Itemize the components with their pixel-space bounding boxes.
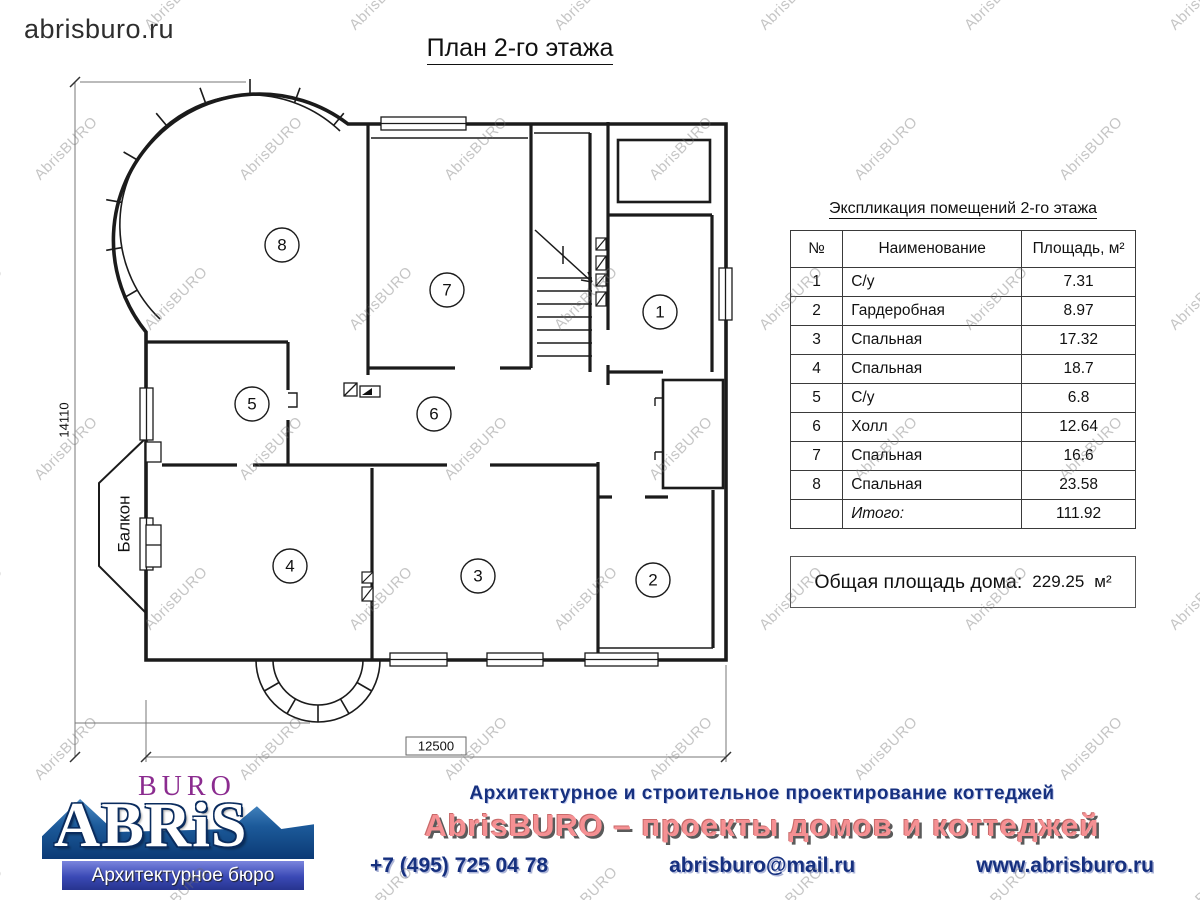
- table-cell: Спальная: [843, 355, 1022, 384]
- room-number-2: 2: [648, 571, 657, 590]
- table-cell: Спальная: [843, 471, 1022, 500]
- abris-logo: BURO ABRiS Архитектурное бюро: [42, 771, 327, 896]
- table-row: 8Спальная23.58: [791, 471, 1136, 500]
- dim-width-label: 12500: [418, 739, 454, 754]
- table-cell: 7: [791, 442, 843, 471]
- table-cell: Спальная: [843, 442, 1022, 471]
- table-cell: Спальная: [843, 326, 1022, 355]
- expl-col-header: Площадь, м²: [1022, 231, 1136, 268]
- table-cell: 18.7: [1022, 355, 1136, 384]
- room-number-7: 7: [442, 281, 451, 300]
- table-cell: 12.64: [1022, 413, 1136, 442]
- footer-phone: +7 (495) 725 04 78: [370, 854, 548, 878]
- table-cell: 2: [791, 297, 843, 326]
- table-cell: Холл: [843, 413, 1022, 442]
- logo-abris-text: ABRiS: [54, 793, 248, 857]
- expl-total-row: Итого: 111.92: [791, 500, 1136, 529]
- table-cell: 23.58: [1022, 471, 1136, 500]
- niche-outline: [663, 380, 723, 488]
- table-cell: 17.32: [1022, 326, 1136, 355]
- table-cell: 1: [791, 268, 843, 297]
- table-cell: 7.31: [1022, 268, 1136, 297]
- footer-right: Архитектурное и строительное проектирова…: [352, 783, 1172, 878]
- room-number-3: 3: [473, 567, 482, 586]
- logo-tagline: Архитектурное бюро: [62, 861, 304, 890]
- table-row: 1С/у7.31: [791, 268, 1136, 297]
- expl-header-row: №НаименованиеПлощадь, м²: [791, 231, 1136, 268]
- table-cell: 6.8: [1022, 384, 1136, 413]
- room-number-5: 5: [247, 395, 256, 414]
- table-cell: 4: [791, 355, 843, 384]
- expl-col-header: Наименование: [843, 231, 1022, 268]
- footer-contacts-line: +7 (495) 725 04 78 abrisburo@mail.ru www…: [352, 854, 1172, 878]
- table-cell: Гардеробная: [843, 297, 1022, 326]
- vent-shafts: [596, 238, 606, 306]
- closet-outline: [618, 140, 710, 202]
- footer-services-line: Архитектурное и строительное проектирова…: [352, 783, 1172, 805]
- table-row: 2Гардеробная8.97: [791, 297, 1136, 326]
- room-number-6: 6: [429, 405, 438, 424]
- total-value: 111.92: [1022, 500, 1136, 529]
- room-number-4: 4: [285, 557, 294, 576]
- table-cell: 6: [791, 413, 843, 442]
- room3-wall-shafts: [362, 572, 373, 601]
- room-number-8: 8: [277, 236, 286, 255]
- table-row: 6Холл12.64: [791, 413, 1136, 442]
- expl-col-header: №: [791, 231, 843, 268]
- total-label: Итого:: [843, 500, 1022, 529]
- table-row: 5С/у6.8: [791, 384, 1136, 413]
- hall-shaft-symbols: [344, 383, 380, 397]
- footer: BURO ABRiS Архитектурное бюро Архитектур…: [0, 765, 1200, 900]
- dim-height-label: 14110: [57, 402, 72, 437]
- table-row: 3Спальная17.32: [791, 326, 1136, 355]
- tower-window-band: [106, 79, 344, 319]
- expl-table: №НаименованиеПлощадь, м² 1С/у7.312Гардер…: [790, 230, 1136, 529]
- total-area-unit: м²: [1094, 572, 1111, 592]
- table-cell: 8: [791, 471, 843, 500]
- total-area-box: Общая площадь дома: 229.25 м²: [790, 556, 1136, 608]
- total-empty-cell: [791, 500, 843, 529]
- footer-site: www.abrisburo.ru: [976, 854, 1154, 878]
- total-area-value: 229.25: [1032, 572, 1084, 592]
- total-area-label: Общая площадь дома:: [814, 571, 1022, 594]
- table-cell: 3: [791, 326, 843, 355]
- room-labels: [235, 228, 677, 597]
- table-cell: 16.6: [1022, 442, 1136, 471]
- table-cell: 8.97: [1022, 297, 1136, 326]
- table-row: 7Спальная16.6: [791, 442, 1136, 471]
- stair-treads: [537, 278, 592, 356]
- footer-email: abrisburo@mail.ru: [669, 854, 855, 878]
- bay-window: [256, 660, 380, 722]
- table-cell: 5: [791, 384, 843, 413]
- outer-walls: [113, 94, 726, 660]
- table-cell: С/у: [843, 384, 1022, 413]
- table-row: 4Спальная18.7: [791, 355, 1136, 384]
- balcony-label: Балкон: [115, 495, 134, 552]
- drawing-sheet: abrisburo.ru План 2-го этажа: [0, 0, 1200, 900]
- stair-direction-arrow: [535, 230, 592, 282]
- expl-table-title: Экспликация помещений 2-го этажа: [790, 200, 1136, 218]
- table-cell: С/у: [843, 268, 1022, 297]
- expl-table-body: 1С/у7.312Гардеробная8.973Спальная17.324С…: [791, 268, 1136, 500]
- footer-slogan-line: AbrisBURO – проекты домов и коттеджей: [352, 808, 1172, 844]
- room-number-1: 1: [655, 303, 664, 322]
